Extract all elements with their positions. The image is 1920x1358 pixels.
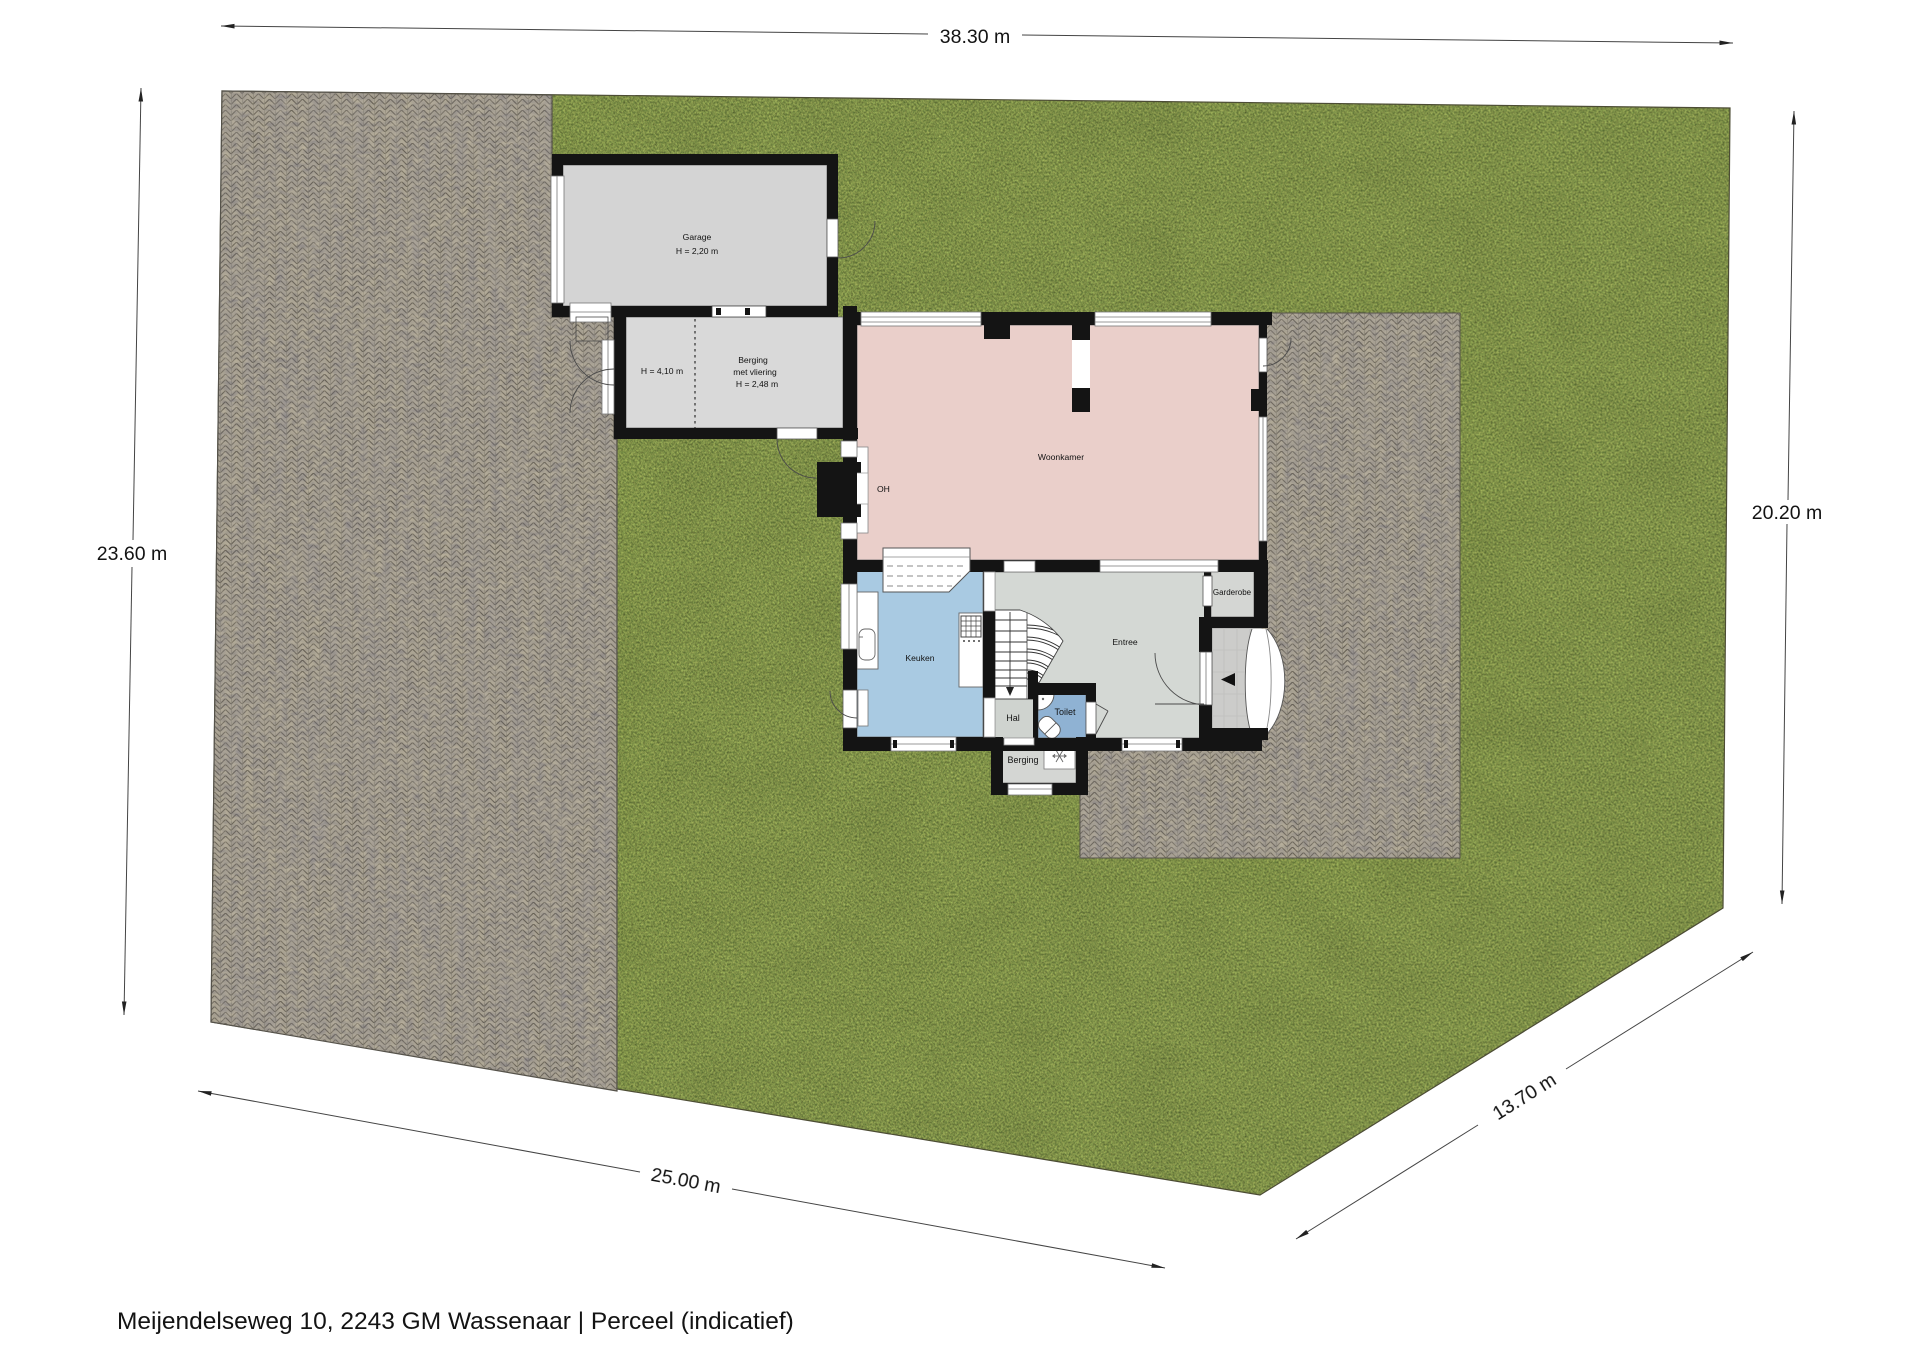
svg-text:20.20 m: 20.20 m [1752,502,1822,524]
svg-text:Hal: Hal [1006,713,1020,723]
svg-text:OH: OH [877,484,890,494]
svg-text:Meijendelseweg 10, 2243 GM Was: Meijendelseweg 10, 2243 GM Wassenaar | P… [117,1308,794,1335]
svg-text:H = 2,20 m: H = 2,20 m [676,246,718,256]
svg-text:Garage: Garage [683,232,712,242]
svg-text:H = 2,48 m: H = 2,48 m [736,379,778,389]
svg-text:Keuken: Keuken [905,653,934,663]
svg-text:Toilet: Toilet [1054,707,1076,717]
svg-text:Garderobe: Garderobe [1213,588,1252,597]
svg-text:Woonkamer: Woonkamer [1038,452,1084,462]
svg-text:H = 4,10 m: H = 4,10 m [641,366,683,376]
svg-text:met vliering: met vliering [733,367,777,377]
svg-text:Berging: Berging [738,355,768,365]
svg-text:Entree: Entree [1112,637,1138,647]
svg-text:38.30 m: 38.30 m [940,26,1010,48]
svg-text:23.60 m: 23.60 m [97,543,167,565]
svg-text:Berging: Berging [1007,755,1038,765]
